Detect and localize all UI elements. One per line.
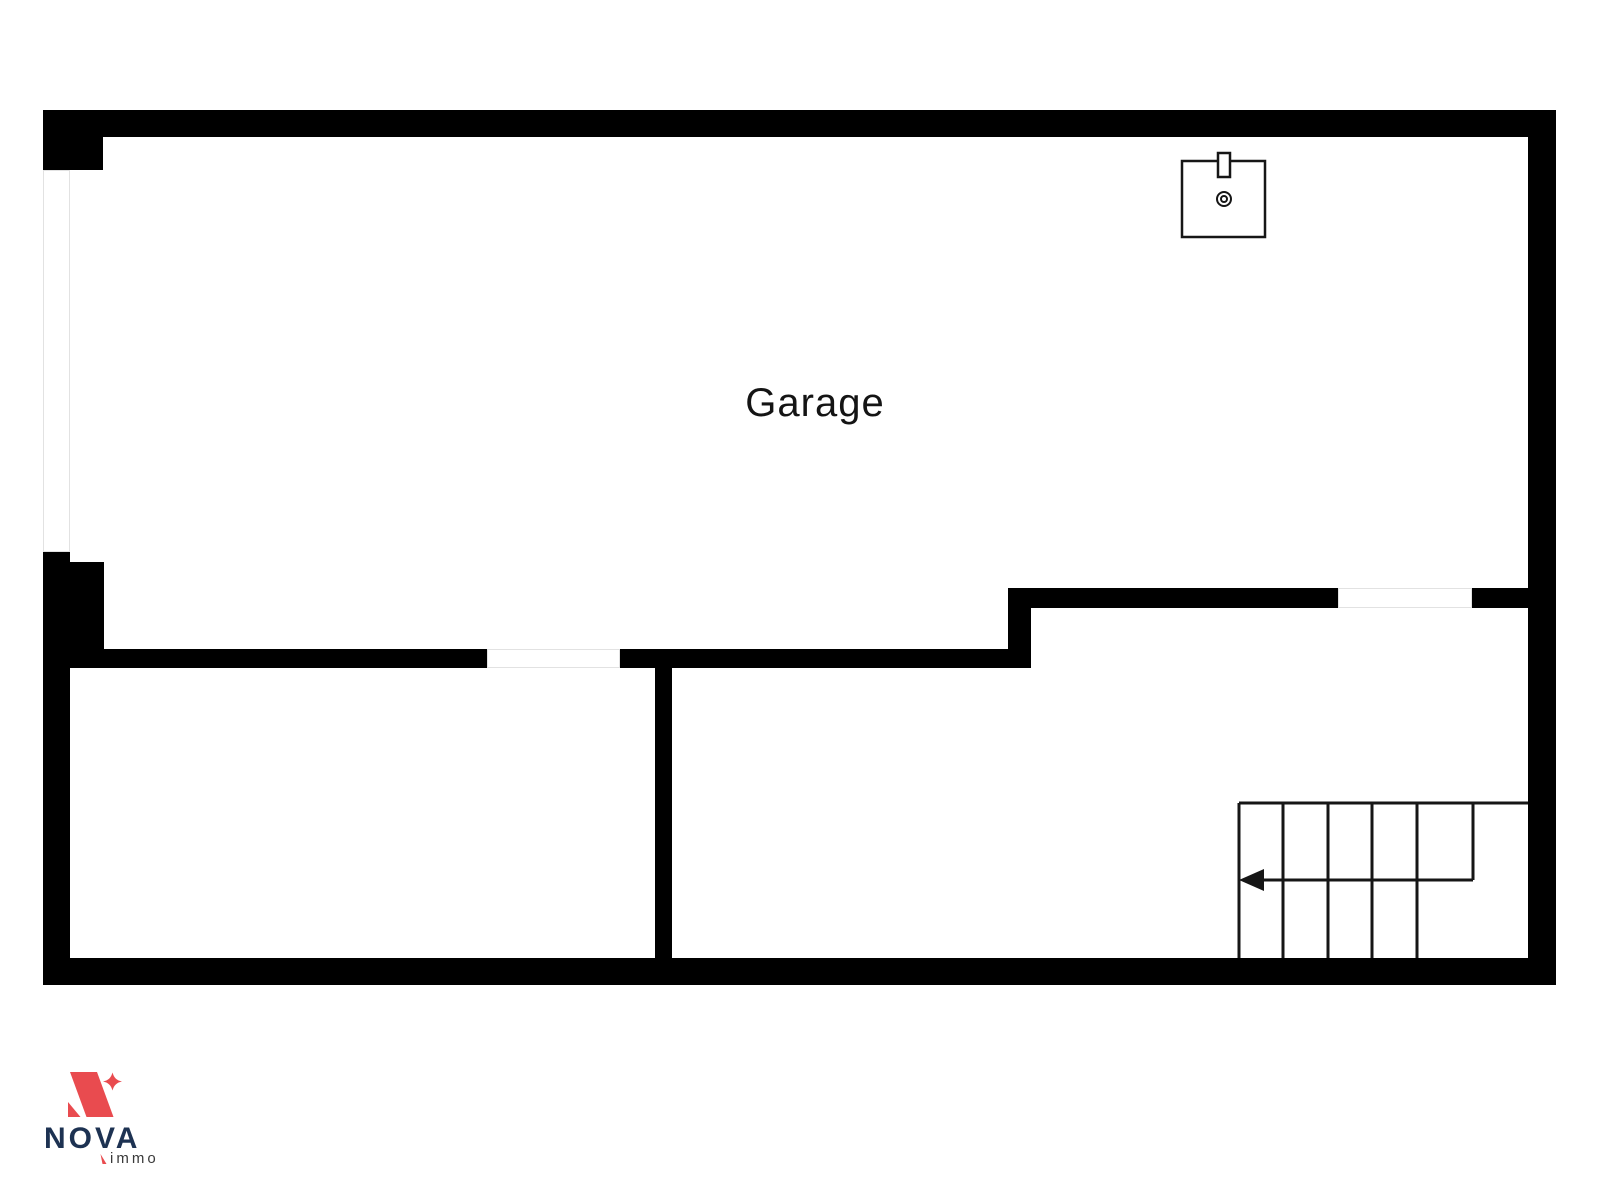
- window-opening-upper-wall: [1338, 588, 1472, 608]
- room-label-garage: Garage: [745, 381, 884, 426]
- sink-icon: [1182, 153, 1265, 237]
- wall-top: [43, 110, 1556, 137]
- wall-left-lower: [43, 552, 70, 985]
- door-opening-lower-wall: [487, 649, 620, 668]
- stairs: [1239, 803, 1528, 958]
- interior-wall-room-divider: [655, 668, 672, 958]
- floorplan: Garage NOVA immo: [0, 0, 1600, 1200]
- interior-wall-lower-left-segment: [104, 649, 487, 668]
- left-pier: [70, 562, 104, 668]
- window-opening-left: [43, 170, 70, 552]
- interior-wall-lower-right-segment: [620, 649, 1031, 668]
- wall-bottom: [43, 958, 1556, 985]
- logo-sparkle-icon: [103, 1073, 122, 1091]
- corner-block-top-left: [43, 110, 103, 170]
- wall-right: [1528, 110, 1556, 985]
- interior-wall-upper-right-segment: [1472, 588, 1528, 608]
- stair-direction-arrow: [1239, 869, 1264, 891]
- interior-wall-upper-left-segment: [1008, 588, 1338, 608]
- logo-subtitle: immo: [110, 1150, 159, 1167]
